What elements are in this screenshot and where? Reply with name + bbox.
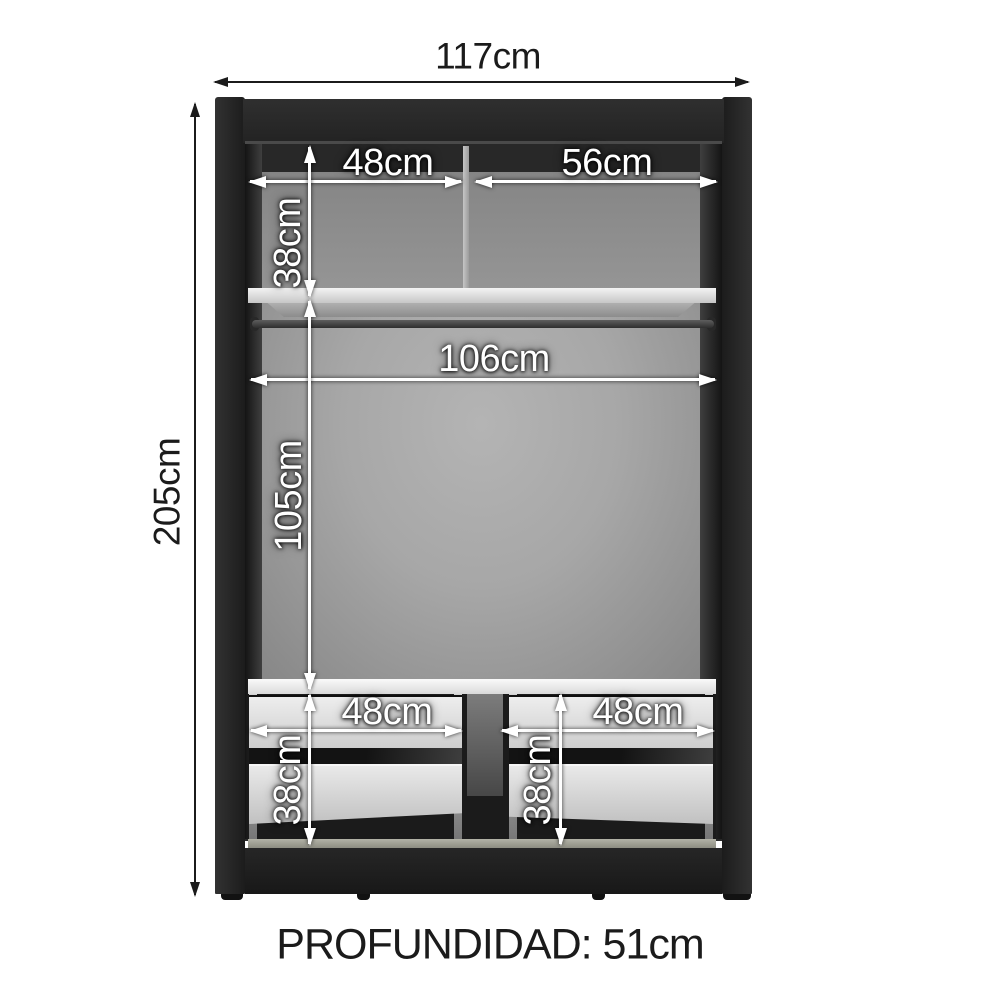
wardrobe-dimension-diagram: 117cm 205cm 48cm 56cm 38cm 106cm 105cm 4… — [0, 0, 1000, 1000]
left-drawer-width-label: 48cm — [342, 693, 433, 731]
right-drawer-height-label: 38cm — [519, 735, 557, 826]
top-panel — [243, 99, 724, 143]
total-height-arrow — [194, 104, 196, 895]
wardrobe-foot — [221, 893, 243, 900]
top-compartment-divider — [463, 146, 469, 290]
base-panel — [245, 848, 722, 894]
right-side-panel — [722, 97, 752, 894]
wardrobe-foot — [592, 893, 605, 900]
top-right-width-label: 56cm — [562, 144, 653, 182]
drawer-center-divider — [467, 694, 503, 796]
rod-width-label: 106cm — [438, 340, 550, 378]
total-width-arrow — [215, 81, 748, 83]
total-width-label: 117cm — [435, 38, 541, 75]
hanging-rod — [252, 320, 714, 328]
interior-floor-strip — [248, 839, 716, 848]
top-compartment-height-label: 38cm — [269, 198, 307, 289]
left-drawer-height-label: 38cm — [269, 735, 307, 826]
top-left-width-label: 48cm — [343, 144, 434, 182]
hanging-height-label: 105cm — [270, 440, 308, 552]
wardrobe-foot — [357, 893, 370, 900]
top-shelf — [248, 288, 716, 303]
wardrobe-foot — [723, 893, 751, 900]
shelf-underside — [262, 302, 700, 317]
top-compartment-back-wall — [262, 172, 700, 290]
right-drawer-width-label: 48cm — [593, 693, 684, 731]
depth-label: PROFUNDIDAD: 51cm — [276, 924, 703, 967]
right-drawer-height-arrow — [559, 695, 562, 844]
total-height-label: 205cm — [149, 438, 186, 547]
left-side-panel — [215, 97, 245, 894]
